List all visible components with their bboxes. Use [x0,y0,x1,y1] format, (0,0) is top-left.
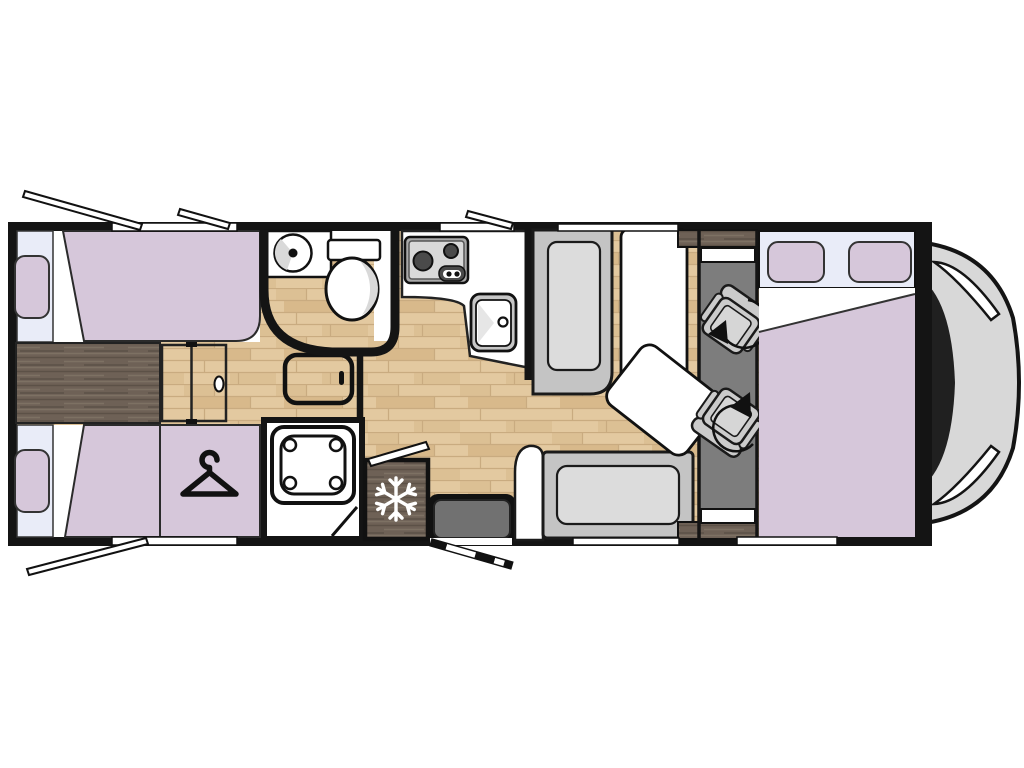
entry-step [434,500,510,538]
window-opening [737,537,837,545]
pillow [15,450,49,512]
bench-cushion [557,466,679,524]
front-bed [759,231,915,537]
cab-shelf-top [678,230,757,247]
floorplan-canvas [0,0,1024,768]
shower-corner [284,477,296,489]
shower-corner [284,439,296,451]
door-rail [186,419,197,424]
door-handle [339,371,344,385]
door-handle [215,377,224,392]
shower-corner [330,439,342,451]
shower [264,420,362,539]
window-opening [573,538,679,545]
bedroom-step-walkway [16,343,160,423]
mattress-top [63,231,260,341]
bench-cushion [548,242,600,370]
mattress-bottom-and-wardrobe [65,425,260,537]
fridge [365,460,428,539]
stove-knob [446,271,451,276]
washbasin-drain [289,249,298,258]
cab-window-strip [701,509,755,523]
cab-window-strip [701,248,755,262]
shower-corner [330,477,342,489]
pillow [849,242,911,282]
burner-icon [444,244,458,258]
pillow [768,242,824,282]
faucet-icon [499,318,508,327]
front-bed-mattress [759,294,915,537]
window-opening [558,224,678,231]
burner-icon [414,252,433,271]
pillow [15,256,49,318]
stove-knob [454,271,459,276]
motorhome-floorplan [0,0,1024,768]
bench-side-panel [515,446,543,540]
door-rail [186,342,197,347]
